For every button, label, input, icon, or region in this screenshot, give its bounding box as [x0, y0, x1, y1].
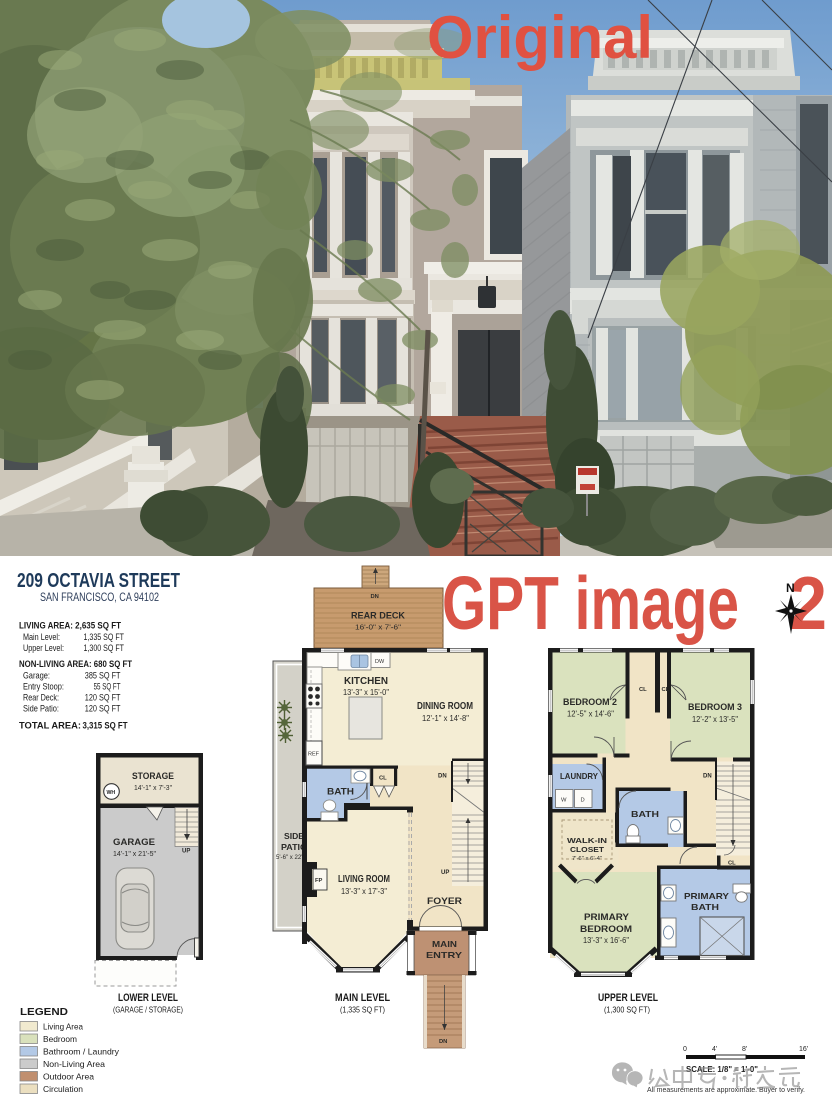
svg-text:STORAGE: STORAGE: [132, 771, 174, 782]
svg-text:209 OCTAVIA STREET: 209 OCTAVIA STREET: [17, 569, 180, 592]
svg-text:16'-0" x 7'-6": 16'-0" x 7'-6": [355, 623, 401, 632]
svg-text:LIVING ROOM: LIVING ROOM: [338, 874, 390, 885]
svg-text:REAR DECK: REAR DECK: [351, 611, 405, 622]
svg-text:Upper Level:: Upper Level:: [23, 643, 64, 653]
svg-text:120 SQ FT: 120 SQ FT: [85, 692, 121, 702]
svg-text:13'-3" x 17'-3": 13'-3" x 17'-3": [341, 887, 387, 896]
svg-text:DINING ROOM: DINING ROOM: [417, 701, 473, 712]
svg-text:CL: CL: [639, 687, 647, 693]
svg-text:FP: FP: [315, 878, 323, 884]
svg-text:PRIMARY: PRIMARY: [584, 912, 630, 923]
svg-text:DN: DN: [438, 774, 447, 780]
svg-text:Side Patio:: Side Patio:: [23, 703, 59, 713]
svg-text:Original: Original: [427, 4, 653, 71]
svg-text:LOWER LEVEL: LOWER LEVEL: [118, 992, 178, 1004]
svg-text:CL: CL: [662, 687, 670, 693]
svg-text:Rear Deck:: Rear Deck:: [23, 692, 59, 702]
svg-text:GARAGE: GARAGE: [113, 837, 155, 848]
svg-text:DN: DN: [703, 774, 712, 780]
svg-text:CL: CL: [379, 776, 387, 782]
svg-text:13'-3" x 16'-6": 13'-3" x 16'-6": [583, 936, 629, 945]
svg-text:LEGEND: LEGEND: [20, 1007, 68, 1018]
svg-text:PRIMARY: PRIMARY: [684, 891, 730, 901]
svg-text:2: 2: [789, 561, 827, 645]
svg-text:13'-3" x 15'-0": 13'-3" x 15'-0": [343, 688, 389, 697]
svg-text:DN: DN: [439, 1039, 447, 1045]
svg-text:3,315 SQ FT: 3,315 SQ FT: [83, 720, 128, 731]
svg-text:W: W: [561, 798, 567, 804]
svg-text:(GARAGE / STORAGE): (GARAGE / STORAGE): [113, 1006, 183, 1015]
svg-text:BATH: BATH: [691, 902, 719, 912]
svg-text:55 SQ FT: 55 SQ FT: [94, 682, 121, 692]
svg-text:SAN FRANCISCO, CA 94102: SAN FRANCISCO, CA 94102: [40, 592, 159, 604]
svg-text:SIDE: SIDE: [284, 831, 304, 841]
svg-text:MAIN LEVEL: MAIN LEVEL: [335, 992, 390, 1004]
svg-text:NON-LIVING AREA: 680 SQ FT: NON-LIVING AREA: 680 SQ FT: [19, 659, 132, 670]
svg-text:Non-Living Area: Non-Living Area: [43, 1059, 105, 1069]
svg-text:All measurements are approxima: All measurements are approximate. Buyer …: [647, 1085, 805, 1094]
svg-text:BEDROOM 3: BEDROOM 3: [688, 702, 742, 713]
svg-text:1,335 SQ FT: 1,335 SQ FT: [84, 632, 125, 642]
svg-text:Main Level:: Main Level:: [23, 632, 60, 642]
svg-text:DW: DW: [375, 659, 385, 665]
svg-text:WALK-IN: WALK-IN: [567, 836, 607, 845]
svg-text:0: 0: [683, 1046, 687, 1053]
svg-text:Entry Stoop:: Entry Stoop:: [23, 682, 64, 692]
svg-text:4': 4': [712, 1046, 717, 1053]
svg-text:(1,335 SQ FT): (1,335 SQ FT): [340, 1006, 385, 1015]
svg-text:FOYER: FOYER: [427, 896, 462, 907]
svg-text:CLOSET: CLOSET: [570, 845, 605, 854]
svg-text:WH: WH: [107, 790, 116, 796]
svg-text:Bathroom / Laundry: Bathroom / Laundry: [43, 1047, 120, 1057]
svg-text:Garage:: Garage:: [23, 670, 50, 680]
svg-text:(1,300 SQ FT): (1,300 SQ FT): [604, 1006, 650, 1015]
svg-text:8': 8': [742, 1046, 747, 1053]
svg-text:UP: UP: [182, 849, 190, 855]
svg-text:385 SQ FT: 385 SQ FT: [85, 670, 121, 680]
svg-text:14'-1" x 7'-3": 14'-1" x 7'-3": [134, 783, 172, 792]
svg-text:Living Area: Living Area: [43, 1022, 83, 1032]
svg-text:BATH: BATH: [327, 787, 354, 797]
svg-text:BEDROOM: BEDROOM: [580, 924, 632, 935]
svg-text:16': 16': [799, 1046, 808, 1053]
svg-text:Circulation: Circulation: [43, 1084, 83, 1094]
svg-text:12'-2" x 13'-5": 12'-2" x 13'-5": [692, 715, 738, 724]
svg-text:LIVING AREA: 2,635 SQ FT: LIVING AREA: 2,635 SQ FT: [19, 621, 121, 632]
svg-text:Outdoor Area: Outdoor Area: [43, 1072, 94, 1082]
svg-text:UP: UP: [441, 870, 449, 876]
svg-text:LAUNDRY: LAUNDRY: [560, 771, 598, 781]
svg-text:12'-5" x 14'-6": 12'-5" x 14'-6": [567, 710, 614, 719]
svg-text:BATH: BATH: [631, 809, 659, 819]
svg-text:CL: CL: [728, 861, 736, 867]
svg-text:TOTAL AREA:: TOTAL AREA:: [19, 720, 81, 731]
svg-text:DN: DN: [371, 594, 379, 600]
svg-text:120 SQ FT: 120 SQ FT: [85, 703, 121, 713]
svg-text:GPT image: GPT image: [442, 561, 739, 645]
svg-text:12'-1" x 14'-8": 12'-1" x 14'-8": [422, 714, 469, 723]
svg-text:1,300 SQ FT: 1,300 SQ FT: [84, 643, 125, 653]
svg-text:REF: REF: [308, 752, 320, 758]
svg-text:KITCHEN: KITCHEN: [344, 676, 388, 687]
svg-text:7'-6" x 6'-4": 7'-6" x 6'-4": [572, 856, 602, 862]
svg-text:N: N: [786, 581, 795, 595]
svg-text:Bedroom: Bedroom: [43, 1034, 77, 1044]
svg-text:UPPER LEVEL: UPPER LEVEL: [598, 992, 658, 1004]
svg-text:D: D: [581, 798, 585, 804]
svg-text:ENTRY: ENTRY: [426, 950, 463, 960]
svg-text:BEDROOM 2: BEDROOM 2: [563, 697, 617, 708]
svg-text:14'-1" x 21'-5": 14'-1" x 21'-5": [113, 849, 156, 858]
svg-text:MAIN: MAIN: [432, 939, 457, 949]
